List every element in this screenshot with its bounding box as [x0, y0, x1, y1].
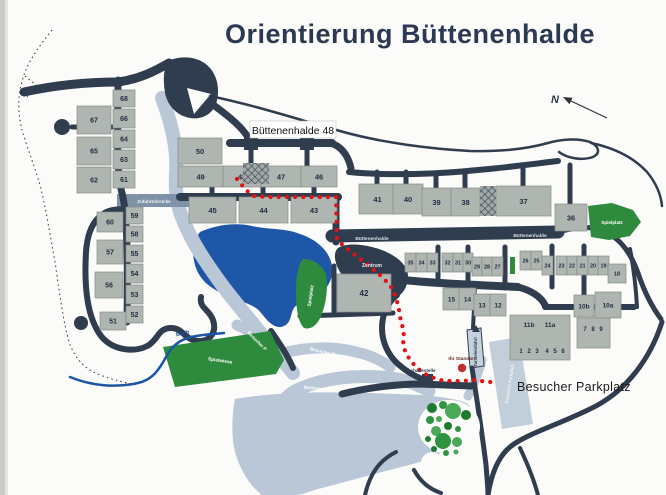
building-37-hatch — [480, 186, 496, 216]
route-dot — [285, 195, 289, 199]
route-dot — [252, 194, 256, 198]
route-dot — [359, 257, 363, 261]
route-dot — [346, 247, 350, 251]
besucher-parkplatz-label: Besucher Parkplatz — [517, 380, 631, 394]
building-number: 13 — [478, 302, 486, 309]
tree-icon — [425, 436, 431, 442]
map-label-b-ttenenhalde: Büttenenhalde — [355, 236, 389, 242]
building-number: 20 — [590, 264, 596, 270]
building-number: 57 — [106, 250, 114, 257]
route-dot — [401, 340, 405, 344]
route-dot — [397, 308, 401, 312]
route-dot — [403, 348, 407, 352]
route-dot — [318, 195, 322, 199]
building-number: 51 — [109, 319, 117, 326]
building-number: 45 — [208, 206, 216, 215]
building-number: 27 — [494, 265, 500, 271]
route-dot — [340, 242, 344, 246]
orientation-map: 6866646361676562605756515958555453525049… — [0, 0, 666, 495]
route-dot — [326, 195, 330, 199]
route-dot — [456, 379, 460, 383]
route-dot — [398, 316, 402, 320]
building-number: 34 — [418, 261, 425, 267]
building-number: 40 — [404, 195, 412, 204]
route-dot — [334, 203, 338, 207]
callout-label: Büttenenhalde 48 — [252, 125, 334, 137]
route-dot — [268, 195, 272, 199]
route-dot — [334, 211, 338, 215]
route-dot — [335, 228, 339, 232]
tree-icon — [431, 446, 437, 452]
tree-icon — [426, 416, 434, 424]
map-label-zentrum: Zentrum — [362, 263, 383, 269]
building-number: 23 — [558, 264, 564, 270]
building-number: 65 — [90, 149, 98, 156]
route-dot — [389, 285, 393, 289]
building-number: 60 — [106, 220, 114, 227]
building-number: 43 — [310, 206, 318, 215]
building-number: 52 — [131, 312, 139, 319]
building-number: 42 — [360, 289, 369, 298]
building-number: 61 — [120, 177, 128, 184]
route-dot — [277, 195, 281, 199]
route-dot — [309, 195, 313, 199]
map-label-zufahrtsbr-cke: Zufahrtsbrücke — [137, 199, 171, 204]
cul-de-sac-south — [74, 316, 88, 330]
tree-icon — [443, 450, 449, 456]
building-number: 47 — [277, 172, 285, 181]
compass-n-label: N — [551, 94, 560, 106]
building-number: 37 — [519, 197, 527, 206]
route-dot — [384, 279, 388, 283]
building-number: 11b — [524, 322, 535, 329]
building-number: 36 — [567, 213, 575, 222]
map-label-spielplatz: Spielplatz — [601, 220, 623, 225]
building-number: 32 — [444, 261, 450, 267]
building-number: 67 — [90, 118, 98, 125]
building-number: 33 — [429, 261, 435, 267]
building-number: 62 — [90, 178, 98, 185]
scan-edge-soft — [5, 0, 8, 495]
map-page: 6866646361676562605756515958555453525049… — [0, 0, 666, 495]
building-number: 29 — [474, 265, 480, 271]
route-dot — [439, 378, 443, 382]
building-number: 68 — [120, 96, 128, 103]
route-dot — [464, 379, 468, 383]
route-dot — [480, 379, 484, 383]
building-number: 26 — [522, 259, 528, 265]
building-number: 41 — [373, 195, 381, 204]
page-title: Orientierung Büttenenhalde — [225, 19, 595, 49]
building-number: 39 — [432, 198, 440, 207]
building-number: 14 — [464, 296, 472, 303]
route-dot — [301, 195, 305, 199]
route-dot — [407, 355, 411, 359]
route-dot — [402, 332, 406, 336]
route-dot — [293, 195, 297, 199]
route-dot — [411, 362, 415, 366]
building-number: 22 — [569, 264, 575, 270]
building-48-hatch — [243, 163, 269, 184]
map-label-b-ttenenhalde: Büttenenhalde — [513, 233, 547, 239]
cul-de-sac-north — [54, 119, 70, 135]
your-location-marker — [458, 364, 466, 372]
route-dot — [352, 252, 356, 256]
building-number: 63 — [120, 157, 128, 164]
building-number: 25 — [533, 259, 539, 265]
route-dot — [400, 324, 404, 328]
roundabout-island — [421, 452, 443, 474]
route-dot — [395, 300, 399, 304]
route-dot — [447, 379, 451, 383]
route-dot — [335, 236, 339, 240]
building-number: 15 — [448, 296, 456, 303]
building-number: 55 — [131, 251, 139, 258]
building-number: 12 — [494, 302, 502, 309]
building-number: 21 — [579, 264, 585, 270]
route-dot — [260, 195, 264, 199]
tree-icon — [436, 416, 442, 422]
tree-icon — [427, 403, 437, 413]
route-dot — [334, 195, 338, 199]
building-number: 35 — [407, 261, 413, 267]
map-label-ihr-standort: Ihr Standort — [448, 356, 476, 362]
building-number: 11a — [545, 322, 556, 329]
building-number: 10a — [603, 302, 614, 309]
building-number: 44 — [259, 206, 268, 215]
building-number: 66 — [120, 116, 128, 123]
building-number: 64 — [120, 137, 128, 144]
map-label-tunneleinfahrt: Tunneleinfahrt — [473, 337, 478, 367]
scan-edge — [0, 0, 5, 495]
building-number: 53 — [131, 292, 139, 299]
building-block — [577, 318, 610, 348]
tree-icon — [455, 426, 461, 432]
building-number: 58 — [131, 232, 139, 239]
building-number: 24 — [544, 264, 551, 270]
callout-buettenenhalde-48: Büttenenhalde 48 — [250, 121, 336, 138]
tree-icon — [454, 450, 459, 455]
tree-icon — [461, 410, 471, 420]
route-dot — [378, 273, 382, 277]
building-number: 19 — [600, 264, 606, 270]
route-dot — [235, 177, 239, 181]
building-number: 18 — [614, 272, 620, 278]
building-number: 31 — [455, 261, 461, 267]
green-strip — [510, 257, 515, 274]
route-dot — [472, 378, 476, 382]
route-dot — [240, 183, 244, 187]
tree-icon — [444, 422, 452, 430]
building-number: 50 — [196, 147, 204, 156]
building-number: 49 — [196, 172, 204, 181]
building-number: 10b — [578, 303, 589, 310]
building-number: 56 — [105, 283, 113, 290]
tree-icon — [445, 403, 461, 419]
route-dot — [488, 380, 492, 384]
route-dot — [334, 220, 338, 224]
building-number: 30 — [465, 261, 471, 267]
building-number: 38 — [461, 198, 469, 207]
tree-icon — [435, 433, 451, 449]
building-number: 59 — [131, 213, 139, 220]
map-label-bushaltestelle: Bushaltestelle — [404, 368, 436, 373]
route-dot — [393, 292, 397, 296]
route-dot — [246, 189, 250, 193]
building-number: 54 — [131, 271, 139, 278]
building-number: 28 — [484, 265, 490, 271]
tree-icon — [452, 437, 462, 447]
building-number: 46 — [315, 172, 323, 181]
route-dot — [431, 376, 435, 380]
